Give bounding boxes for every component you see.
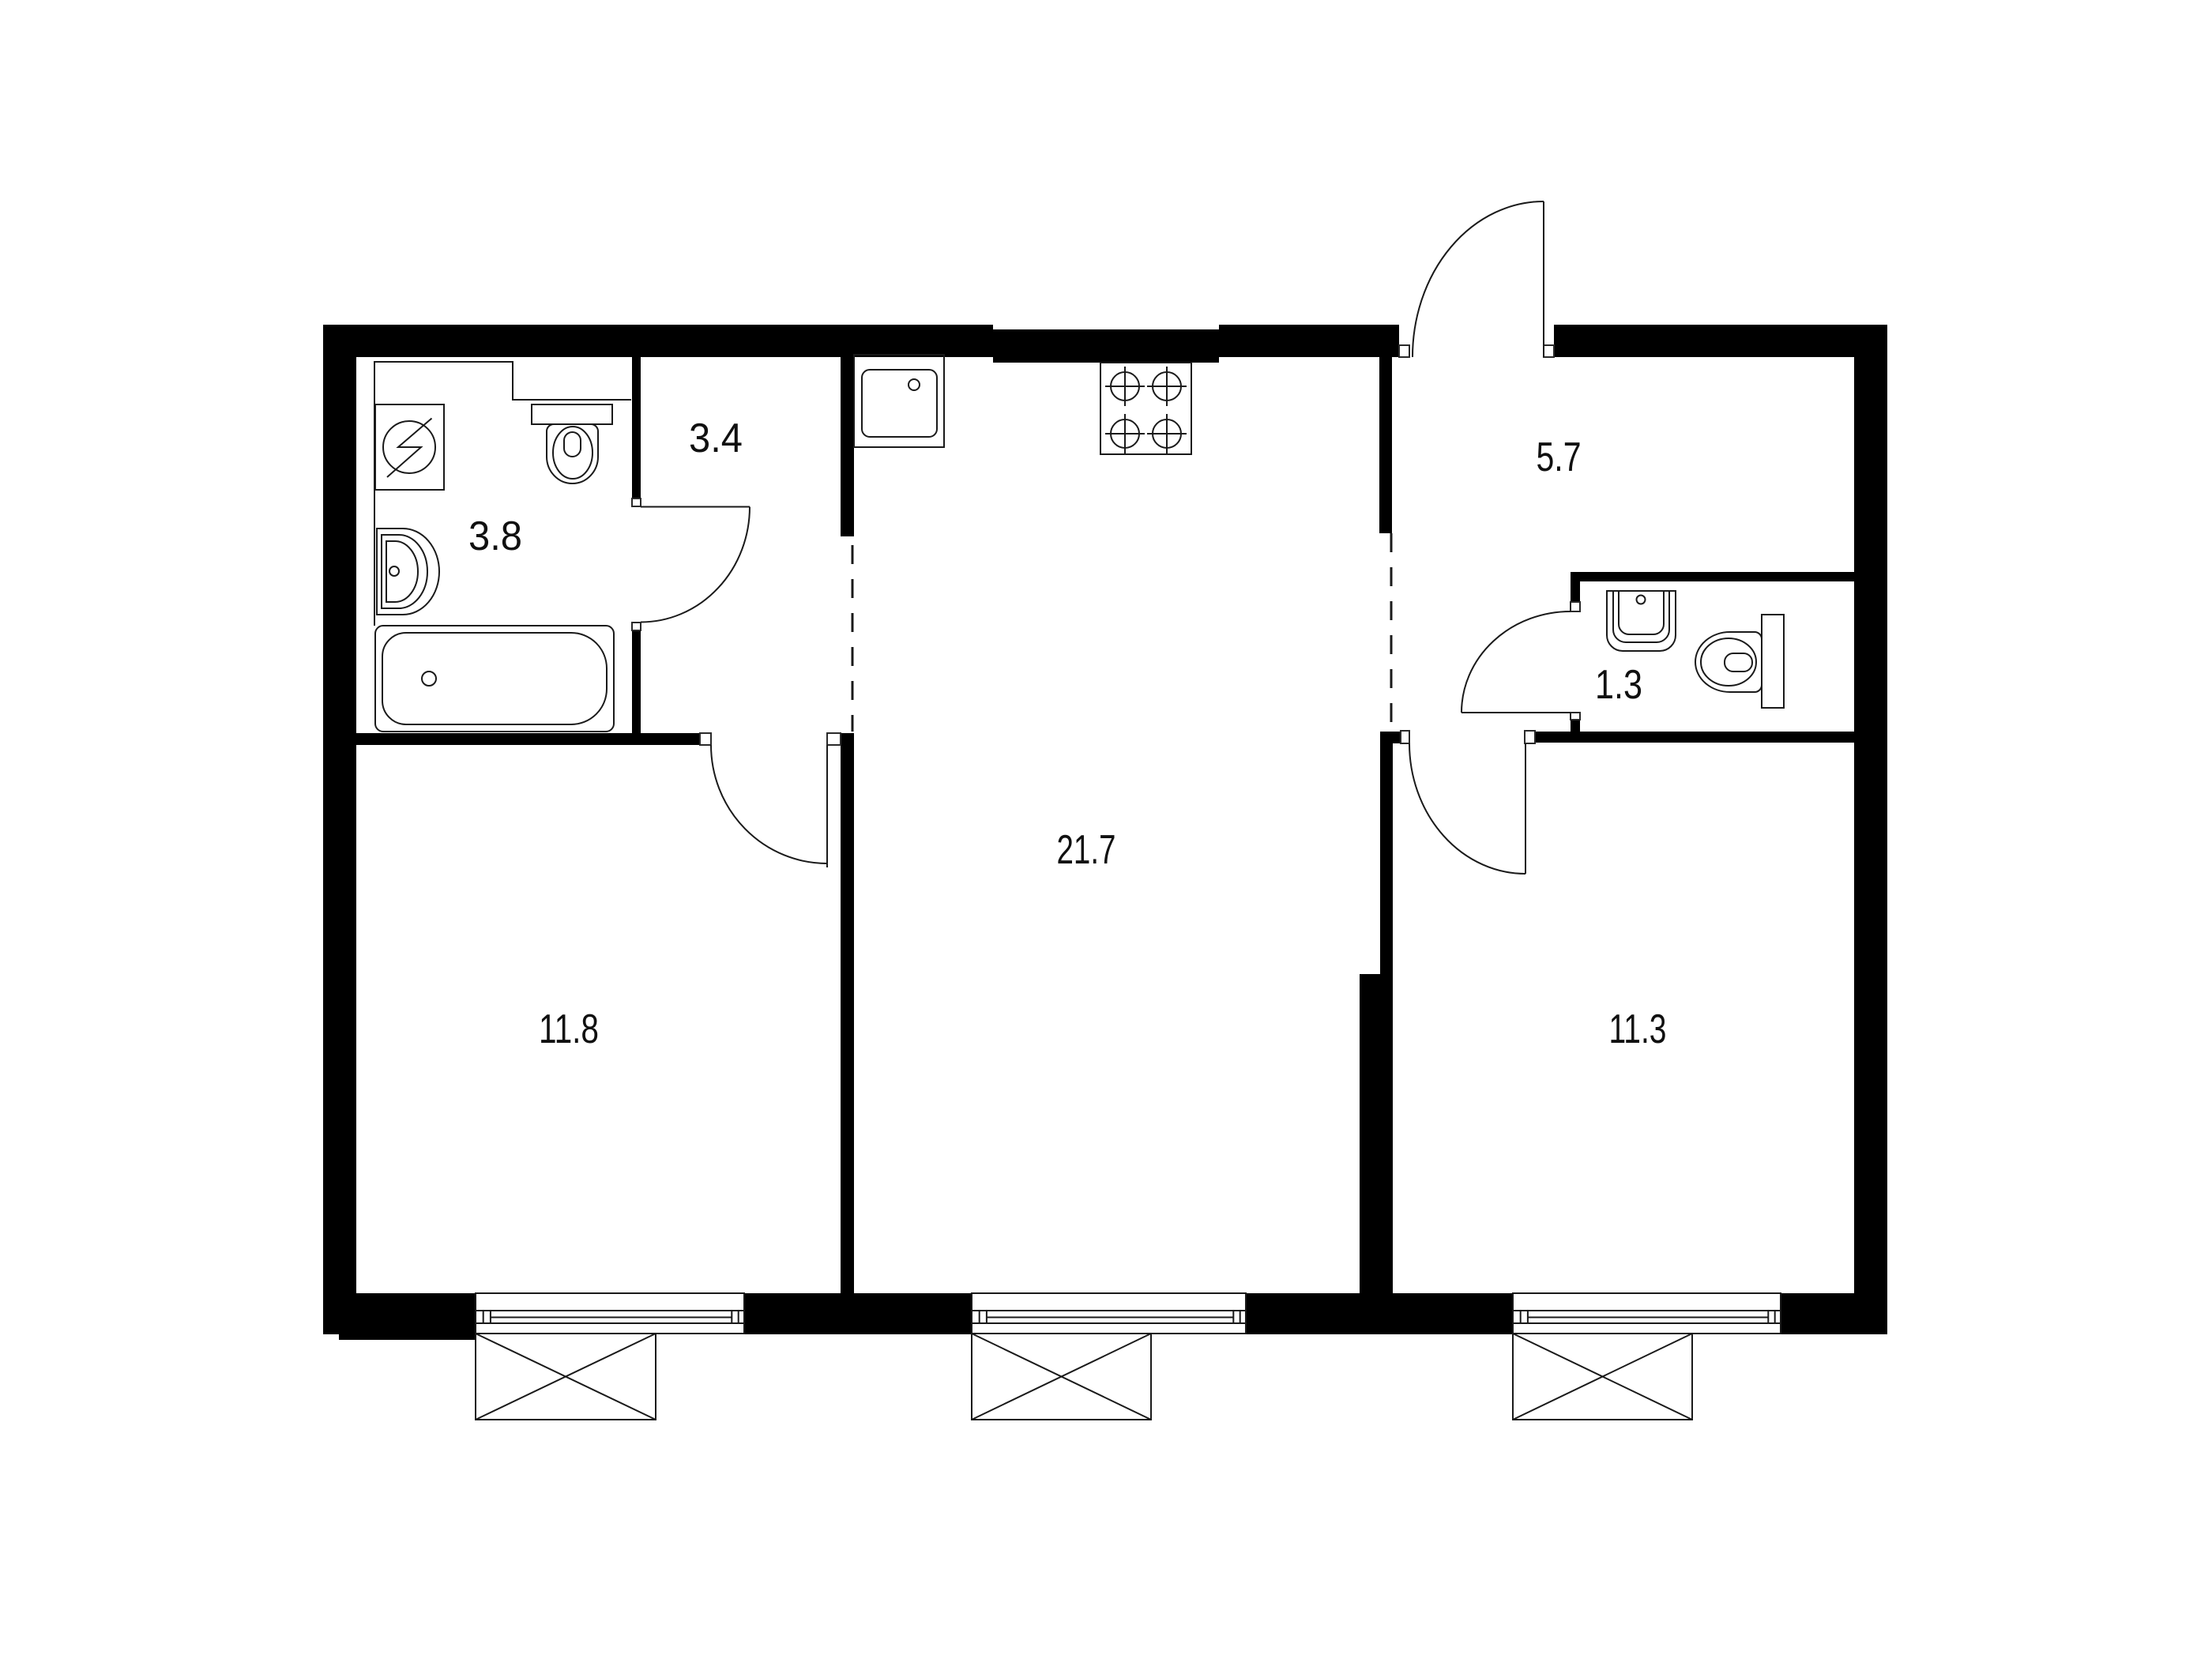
svg-text:5.7: 5.7 <box>1537 434 1582 480</box>
svg-text:11.3: 11.3 <box>1609 1006 1667 1052</box>
svg-text:11.8: 11.8 <box>539 1006 599 1052</box>
svg-text:3.4: 3.4 <box>689 416 743 461</box>
svg-text:3.8: 3.8 <box>468 513 522 559</box>
svg-text:21.7: 21.7 <box>1057 827 1116 873</box>
svg-text:1.3: 1.3 <box>1595 662 1642 708</box>
